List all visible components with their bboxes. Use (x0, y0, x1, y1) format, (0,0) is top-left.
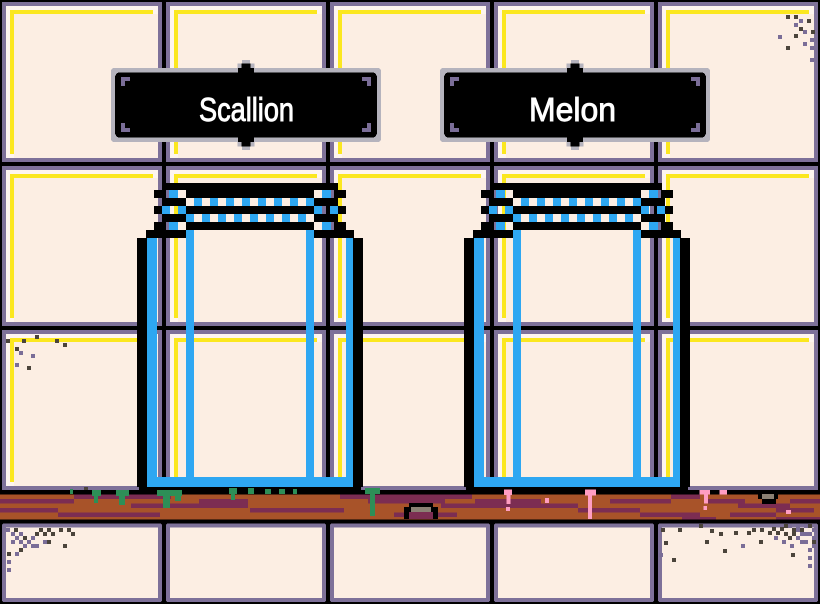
svg-text:Scallion: Scallion (199, 91, 294, 128)
svg-text:Melon: Melon (529, 91, 616, 128)
